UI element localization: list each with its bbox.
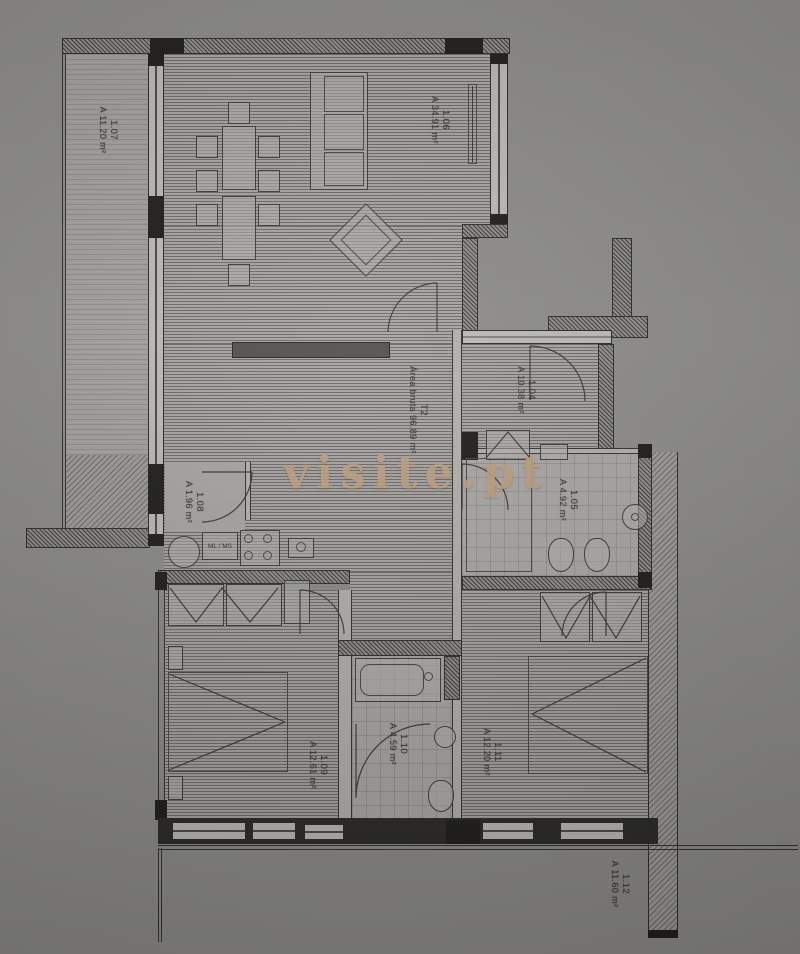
room-label-109: 1.09 A 12.61 m² xyxy=(306,725,330,805)
bed-111-lines xyxy=(532,658,646,772)
room-id: 1.06 xyxy=(440,110,451,130)
room-area: A 11.20 m² xyxy=(97,107,108,154)
room-area: A 12.20 m² xyxy=(481,728,492,776)
room-label-112: 1.12 A 11.60 m² xyxy=(608,842,632,926)
room-area: A 11.60 m² xyxy=(609,861,620,908)
room-area: A 12.61 m² xyxy=(307,741,318,789)
room-label-104: 1.04 A 10.38 m² xyxy=(514,350,538,430)
room-id: 1.05 xyxy=(568,490,579,510)
room-label-110: 1.10 A 4.59 m² xyxy=(386,706,410,782)
room-id: 1.10 xyxy=(398,734,409,754)
room-area: A 10.38 m² xyxy=(515,366,526,414)
wardrobe-111-zigzag xyxy=(542,596,640,638)
room-area: A 4.59 m² xyxy=(387,723,398,765)
wardrobe-109-zigzag xyxy=(170,588,278,622)
room-label-108: 1.08 A 1.96 m² xyxy=(183,467,205,537)
room-id: 1.08 xyxy=(194,492,205,512)
room-id: 1.04 xyxy=(526,380,537,400)
bed-109-lines xyxy=(169,674,285,770)
room-area: A 34.91 m² xyxy=(429,96,440,144)
room-id: 1.07 xyxy=(108,120,119,140)
room-label-105: 1.05 A 4.92 m² xyxy=(556,460,580,540)
type-label: T2 xyxy=(418,404,429,416)
room-id: 1.12 xyxy=(620,874,631,894)
door-arc-bedroom-111 xyxy=(562,592,606,636)
watermark: visite.pt xyxy=(283,446,549,499)
door-arc-laundry-108 xyxy=(202,472,252,522)
door-arc-hall-104 xyxy=(530,346,585,401)
door-arc-living xyxy=(388,283,437,332)
room-label-106: 1.06 A 34.91 m² xyxy=(428,80,452,160)
door-arc-bedroom-109 xyxy=(300,590,344,634)
room-area: A 1.96 m² xyxy=(183,481,194,523)
room-id: 1.09 xyxy=(318,755,329,775)
room-area: A 4.92 m² xyxy=(557,479,568,521)
room-label-107: 1.07 A 11.20 m² xyxy=(96,90,120,170)
room-label-111: 1.11 A 12.20 m² xyxy=(480,712,504,792)
room-id: 1.11 xyxy=(492,742,503,761)
gross-area-label: Área bruta 96.89 m² xyxy=(407,366,418,454)
floorplan-photo: ML / MS xyxy=(0,0,800,954)
